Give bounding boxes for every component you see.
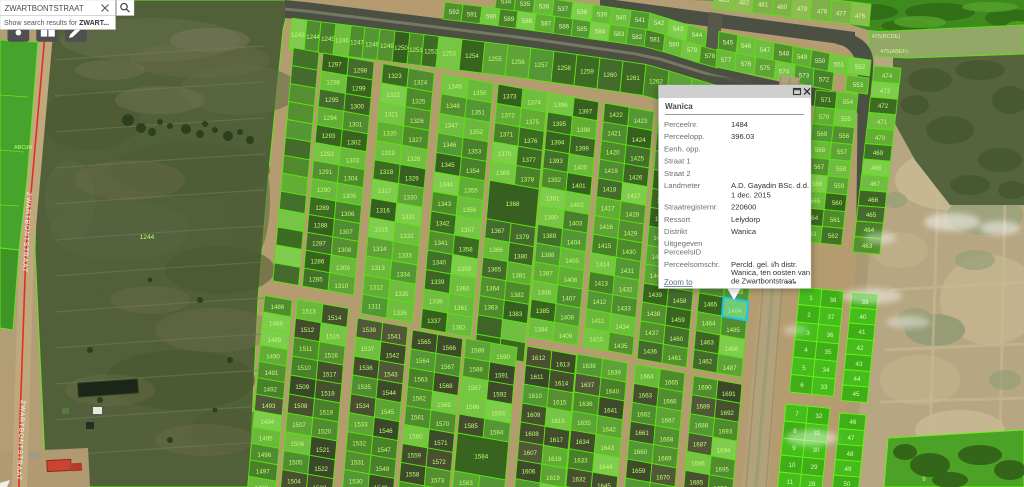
svg-text:1420: 1420 [606, 149, 620, 156]
svg-text:1348: 1348 [446, 103, 460, 110]
svg-text:1506: 1506 [290, 441, 304, 448]
svg-text:1563: 1563 [414, 377, 428, 384]
svg-text:1258: 1258 [557, 65, 571, 72]
svg-text:7: 7 [795, 411, 799, 418]
svg-text:1402: 1402 [570, 202, 584, 209]
svg-text:1612: 1612 [532, 355, 546, 362]
svg-text:1339: 1339 [431, 279, 445, 286]
svg-text:1426: 1426 [629, 174, 643, 181]
svg-text:1409: 1409 [559, 333, 573, 340]
svg-text:1611: 1611 [530, 374, 544, 381]
svg-text:1462: 1462 [698, 359, 712, 366]
svg-text:1520: 1520 [318, 428, 332, 435]
svg-text:1668: 1668 [660, 436, 674, 443]
svg-text:541: 541 [635, 17, 646, 24]
svg-text:1493: 1493 [262, 403, 276, 410]
svg-text:478: 478 [817, 8, 828, 15]
svg-text:1365: 1365 [487, 266, 501, 273]
svg-text:1586: 1586 [466, 404, 480, 411]
svg-text:Perceelsomschr.: Perceelsomschr. [664, 260, 720, 269]
svg-text:1256: 1256 [511, 59, 525, 66]
svg-text:1661: 1661 [635, 430, 649, 437]
svg-text:1667: 1667 [661, 418, 675, 425]
svg-text:1421: 1421 [607, 131, 621, 138]
svg-text:1331: 1331 [402, 214, 416, 221]
svg-text:1616: 1616 [551, 418, 565, 425]
svg-text:1: 1 [809, 295, 813, 302]
svg-text:1367: 1367 [491, 228, 505, 235]
svg-text:1565: 1565 [417, 339, 431, 346]
svg-text:572: 572 [819, 77, 830, 84]
svg-text:1329: 1329 [405, 176, 419, 183]
svg-text:1368: 1368 [506, 201, 520, 208]
svg-text:1692: 1692 [720, 410, 734, 417]
svg-text:472: 472 [878, 103, 889, 110]
svg-text:36: 36 [827, 332, 834, 339]
svg-text:475(ABEF): 475(ABEF) [880, 49, 908, 55]
svg-text:1308: 1308 [338, 247, 352, 254]
svg-text:1438: 1438 [647, 311, 661, 318]
svg-text:1344: 1344 [439, 181, 453, 188]
svg-text:de Zwartbontstraat.: de Zwartbontstraat. [731, 277, 796, 286]
svg-text:1507: 1507 [292, 422, 306, 429]
svg-text:220600: 220600 [731, 203, 756, 212]
svg-text:1369: 1369 [496, 170, 510, 177]
svg-text:1510: 1510 [297, 365, 311, 372]
svg-text:1465: 1465 [703, 302, 717, 309]
svg-text:1693: 1693 [718, 429, 732, 436]
svg-text:575: 575 [760, 65, 771, 72]
svg-text:1663: 1663 [638, 392, 652, 399]
svg-text:11: 11 [787, 479, 794, 486]
svg-text:1262: 1262 [649, 78, 663, 85]
svg-text:1495: 1495 [259, 436, 273, 443]
svg-text:567: 567 [814, 164, 825, 171]
svg-text:591: 591 [467, 11, 478, 18]
svg-text:1336: 1336 [393, 310, 407, 317]
svg-text:1406: 1406 [564, 277, 578, 284]
svg-text:1363: 1363 [484, 305, 498, 312]
svg-text:1394: 1394 [551, 140, 565, 147]
svg-text:1382: 1382 [510, 292, 524, 299]
svg-text:1327: 1327 [408, 137, 422, 144]
svg-text:542: 542 [654, 20, 665, 27]
svg-text:1295: 1295 [325, 97, 339, 104]
svg-text:1669: 1669 [658, 455, 672, 462]
svg-text:1255: 1255 [488, 56, 502, 63]
svg-text:546: 546 [741, 43, 752, 50]
svg-text:42: 42 [857, 345, 864, 352]
svg-text:1512: 1512 [300, 327, 314, 334]
svg-text:1606: 1606 [522, 469, 536, 476]
svg-text:463: 463 [862, 243, 873, 250]
svg-text:545: 545 [723, 39, 734, 46]
svg-text:1334: 1334 [396, 272, 410, 279]
svg-text:1246: 1246 [335, 38, 349, 45]
svg-text:1321: 1321 [385, 111, 399, 118]
svg-text:1560: 1560 [409, 434, 423, 441]
svg-text:535: 535 [520, 1, 531, 8]
svg-text:1511: 1511 [299, 346, 313, 353]
svg-text:1257: 1257 [534, 62, 548, 69]
svg-text:1437: 1437 [645, 330, 659, 337]
svg-text:48: 48 [847, 451, 854, 458]
svg-text:1423: 1423 [634, 118, 648, 125]
svg-text:1644: 1644 [599, 464, 613, 471]
svg-text:1318: 1318 [379, 169, 393, 176]
svg-text:1459: 1459 [671, 317, 685, 324]
svg-text:576: 576 [741, 61, 752, 68]
svg-text:589: 589 [504, 16, 515, 23]
svg-text:1494: 1494 [260, 419, 274, 426]
svg-text:1614: 1614 [554, 380, 568, 387]
svg-text:1429: 1429 [624, 230, 638, 237]
svg-text:1285: 1285 [309, 277, 323, 284]
svg-text:1615: 1615 [553, 399, 567, 406]
svg-text:1513: 1513 [302, 308, 316, 315]
svg-text:1408: 1408 [560, 314, 574, 321]
svg-text:29: 29 [811, 464, 818, 471]
svg-text:1695: 1695 [715, 467, 729, 474]
svg-text:1 dec. 2015: 1 dec. 2015 [731, 190, 771, 199]
svg-text:30: 30 [813, 447, 820, 454]
svg-text:1335: 1335 [395, 291, 409, 298]
svg-text:1691: 1691 [722, 391, 736, 398]
svg-text:Perceelnr.: Perceelnr. [664, 120, 698, 129]
svg-text:1390: 1390 [544, 214, 558, 221]
svg-text:1687: 1687 [693, 442, 707, 449]
svg-text:559: 559 [834, 183, 845, 190]
svg-text:50: 50 [844, 481, 851, 487]
svg-text:1254: 1254 [465, 53, 479, 60]
svg-text:538: 538 [577, 9, 588, 16]
svg-text:1436: 1436 [643, 349, 657, 356]
svg-text:1302: 1302 [347, 139, 361, 146]
svg-text:1607: 1607 [523, 450, 537, 457]
svg-text:552: 552 [855, 64, 866, 71]
svg-text:1694: 1694 [717, 448, 731, 455]
svg-text:574: 574 [779, 69, 790, 76]
svg-text:1461: 1461 [668, 355, 682, 362]
svg-text:1312: 1312 [369, 284, 383, 291]
svg-text:1636: 1636 [579, 401, 593, 408]
svg-text:1391: 1391 [546, 196, 560, 203]
svg-text:1383: 1383 [509, 311, 523, 318]
svg-text:1640: 1640 [605, 388, 619, 395]
svg-text:1310: 1310 [334, 283, 348, 290]
svg-text:32: 32 [816, 413, 823, 420]
svg-text:1366: 1366 [489, 247, 503, 254]
svg-text:1415: 1415 [598, 243, 612, 250]
svg-text:1407: 1407 [562, 296, 576, 303]
svg-text:1319: 1319 [381, 150, 395, 157]
svg-text:1395: 1395 [552, 121, 566, 128]
svg-text:1538: 1538 [362, 327, 376, 334]
svg-text:1665: 1665 [665, 380, 679, 387]
svg-text:1491: 1491 [265, 370, 279, 377]
svg-text:1358: 1358 [459, 246, 473, 253]
svg-text:1379: 1379 [515, 234, 529, 241]
svg-text:1584: 1584 [474, 454, 488, 461]
svg-text:33: 33 [821, 384, 828, 391]
svg-text:568: 568 [815, 147, 826, 154]
svg-text:1361: 1361 [454, 305, 468, 312]
svg-text:1351: 1351 [471, 110, 485, 117]
svg-text:585: 585 [577, 26, 588, 33]
svg-text:1330: 1330 [403, 195, 417, 202]
svg-text:1664: 1664 [640, 373, 654, 380]
svg-text:468: 468 [871, 165, 882, 172]
svg-text:1417: 1417 [601, 206, 615, 213]
svg-text:1422: 1422 [609, 112, 623, 119]
svg-text:1403: 1403 [569, 221, 583, 228]
svg-text:540: 540 [616, 15, 627, 22]
svg-text:1566: 1566 [442, 345, 456, 352]
svg-text:40: 40 [860, 314, 867, 321]
svg-text:1460: 1460 [669, 336, 683, 343]
svg-text:1508: 1508 [294, 403, 308, 410]
svg-text:1463: 1463 [700, 340, 714, 347]
svg-text:5: 5 [802, 365, 806, 372]
svg-text:Lelydorp: Lelydorp [731, 215, 760, 224]
svg-text:Straat 2: Straat 2 [664, 169, 691, 178]
svg-text:1642: 1642 [602, 426, 616, 433]
svg-text:551: 551 [834, 62, 845, 69]
svg-text:Landmeter: Landmeter [664, 181, 701, 190]
svg-text:1259: 1259 [580, 69, 594, 76]
svg-text:1519: 1519 [319, 409, 333, 416]
svg-text:1531: 1531 [351, 460, 365, 467]
svg-text:1514: 1514 [328, 315, 342, 322]
svg-text:590: 590 [486, 14, 497, 21]
svg-text:28: 28 [809, 481, 816, 487]
svg-text:562: 562 [828, 233, 839, 240]
svg-text:1315: 1315 [374, 227, 388, 234]
svg-text:9: 9 [922, 476, 926, 483]
svg-text:1425: 1425 [630, 156, 644, 163]
svg-text:6: 6 [800, 382, 804, 389]
svg-text:41: 41 [859, 329, 866, 336]
svg-text:1592: 1592 [493, 392, 507, 399]
svg-text:1517: 1517 [323, 372, 337, 379]
svg-text:1590: 1590 [496, 354, 510, 361]
svg-text:1559: 1559 [407, 452, 421, 459]
svg-text:1558: 1558 [406, 471, 420, 478]
svg-text:476: 476 [855, 13, 866, 20]
svg-text:470: 470 [875, 135, 886, 142]
svg-text:44: 44 [854, 376, 861, 383]
svg-text:1670: 1670 [656, 474, 670, 481]
svg-text:1522: 1522 [314, 466, 328, 473]
svg-text:3: 3 [806, 330, 810, 337]
svg-text:1378: 1378 [520, 176, 534, 183]
svg-text:553: 553 [853, 82, 864, 89]
svg-text:1637: 1637 [581, 382, 595, 389]
svg-text:1260: 1260 [603, 72, 617, 79]
svg-text:1534: 1534 [356, 403, 370, 410]
svg-text:1386: 1386 [537, 289, 551, 296]
svg-text:1484: 1484 [731, 120, 748, 129]
svg-text:1564: 1564 [416, 358, 430, 365]
svg-text:1314: 1314 [373, 246, 387, 253]
svg-text:9: 9 [792, 445, 796, 452]
svg-text:38: 38 [830, 297, 837, 304]
svg-text:1486: 1486 [725, 346, 739, 353]
svg-text:1317: 1317 [378, 188, 392, 195]
svg-text:35: 35 [825, 349, 832, 356]
svg-text:1464: 1464 [702, 321, 716, 328]
svg-text:1634: 1634 [576, 439, 590, 446]
svg-text:1487: 1487 [723, 365, 737, 372]
svg-text:1587: 1587 [467, 385, 481, 392]
svg-text:1569: 1569 [437, 402, 451, 409]
svg-text:1392: 1392 [547, 177, 561, 184]
svg-text:1316: 1316 [376, 207, 390, 214]
svg-text:1294: 1294 [323, 115, 337, 122]
svg-text:550: 550 [815, 58, 826, 65]
svg-text:1306: 1306 [341, 211, 355, 218]
svg-text:1645: 1645 [597, 483, 611, 487]
svg-text:1662: 1662 [637, 411, 651, 418]
svg-text:1297: 1297 [328, 61, 342, 68]
svg-text:583: 583 [614, 31, 625, 38]
svg-text:1428: 1428 [625, 212, 639, 219]
svg-text:1567: 1567 [441, 364, 455, 371]
svg-text:578: 578 [705, 53, 716, 60]
svg-text:1568: 1568 [439, 383, 453, 390]
svg-text:1572: 1572 [432, 459, 446, 466]
svg-text:1293: 1293 [322, 133, 336, 140]
svg-text:47: 47 [848, 435, 855, 442]
svg-text:1288: 1288 [314, 223, 328, 230]
svg-text:1325: 1325 [412, 99, 426, 106]
svg-text:579: 579 [687, 47, 698, 54]
svg-text:Straatregisternr.: Straatregisternr. [664, 203, 718, 212]
svg-text:1287: 1287 [312, 241, 326, 248]
svg-text:1585: 1585 [464, 423, 478, 430]
svg-text:1594: 1594 [490, 430, 504, 437]
svg-text:580: 580 [669, 42, 680, 49]
svg-text:1347: 1347 [444, 123, 458, 130]
svg-text:Ressort: Ressort [664, 215, 691, 224]
svg-text:1533: 1533 [354, 422, 368, 429]
svg-text:1401: 1401 [572, 183, 586, 190]
svg-text:1660: 1660 [633, 449, 647, 456]
svg-text:1405: 1405 [565, 258, 579, 265]
svg-text:1357: 1357 [461, 227, 475, 234]
svg-text:2: 2 [807, 312, 811, 319]
svg-text:1497: 1497 [256, 469, 270, 476]
svg-text:1583: 1583 [459, 480, 473, 487]
svg-text:1356: 1356 [462, 207, 476, 214]
svg-text:586: 586 [559, 23, 570, 30]
svg-text:537: 537 [558, 6, 569, 13]
svg-text:Perceelopp.: Perceelopp. [664, 132, 705, 141]
svg-text:1433: 1433 [617, 305, 631, 312]
svg-text:Show search results for ZWART.: Show search results for ZWART... [4, 20, 109, 27]
svg-text:1608: 1608 [525, 431, 539, 438]
svg-text:1380: 1380 [514, 253, 528, 260]
svg-text:1261: 1261 [626, 75, 640, 82]
svg-text:1364: 1364 [486, 286, 500, 293]
svg-text:547: 547 [760, 47, 771, 54]
svg-text:534: 534 [501, 0, 512, 6]
svg-text:1343: 1343 [437, 201, 451, 208]
svg-text:481: 481 [758, 2, 769, 9]
svg-text:Zoom to: Zoom to [664, 278, 693, 287]
svg-text:1639: 1639 [607, 370, 621, 377]
svg-text:471: 471 [877, 119, 888, 126]
svg-text:588: 588 [522, 18, 533, 25]
svg-text:543: 543 [673, 26, 684, 33]
svg-text:1243: 1243 [291, 32, 305, 39]
svg-text:1643: 1643 [600, 445, 614, 452]
svg-text:1375: 1375 [525, 119, 539, 126]
svg-text:1244: 1244 [140, 234, 155, 241]
svg-text:1541: 1541 [387, 333, 401, 340]
svg-text:10: 10 [789, 462, 796, 469]
svg-text:1352: 1352 [469, 129, 483, 136]
svg-text:1309: 1309 [336, 265, 350, 272]
svg-text:1619: 1619 [546, 475, 560, 482]
svg-text:1372: 1372 [501, 113, 515, 120]
svg-text:ABCdN: ABCdN [14, 145, 32, 151]
svg-text:569: 569 [817, 131, 828, 138]
svg-text:1362: 1362 [452, 324, 466, 331]
svg-text:1416: 1416 [599, 224, 613, 231]
svg-text:1341: 1341 [434, 240, 448, 247]
svg-text:1641: 1641 [604, 407, 618, 414]
svg-text:1609: 1609 [527, 412, 541, 419]
svg-text:539: 539 [597, 12, 608, 19]
svg-text:1359: 1359 [457, 266, 471, 273]
svg-text:1509: 1509 [295, 384, 309, 391]
svg-text:1342: 1342 [436, 220, 450, 227]
svg-text:1398: 1398 [577, 127, 591, 134]
svg-text:560: 560 [832, 200, 843, 207]
svg-text:1536: 1536 [359, 365, 373, 372]
svg-text:1249: 1249 [380, 43, 394, 50]
svg-text:1388: 1388 [541, 252, 555, 259]
svg-text:1350: 1350 [473, 90, 487, 97]
svg-text:1638: 1638 [582, 363, 596, 370]
svg-text:1434: 1434 [615, 324, 629, 331]
svg-text:1573: 1573 [431, 478, 445, 485]
svg-text:1353: 1353 [468, 149, 482, 156]
svg-text:1659: 1659 [632, 468, 646, 475]
svg-text:1633: 1633 [574, 458, 588, 465]
svg-text:1593: 1593 [491, 411, 505, 418]
svg-text:1505: 1505 [289, 460, 303, 467]
svg-text:1322: 1322 [386, 92, 400, 99]
svg-text:1521: 1521 [316, 447, 330, 454]
svg-text:1384: 1384 [534, 327, 548, 334]
svg-text:1304: 1304 [344, 175, 358, 182]
svg-text:544: 544 [692, 32, 703, 39]
svg-text:1245: 1245 [321, 36, 335, 43]
svg-text:1376: 1376 [524, 138, 538, 145]
svg-text:Straat 1: Straat 1 [664, 157, 691, 166]
svg-text:1591: 1591 [495, 373, 509, 380]
svg-text:469: 469 [873, 150, 884, 157]
svg-text:1338: 1338 [429, 298, 443, 305]
svg-text:1432: 1432 [619, 287, 633, 294]
svg-text:1370: 1370 [498, 151, 512, 158]
svg-text:561: 561 [830, 217, 841, 224]
svg-text:1515: 1515 [326, 334, 340, 341]
svg-text:1374: 1374 [527, 100, 541, 107]
svg-text:536: 536 [539, 4, 550, 11]
